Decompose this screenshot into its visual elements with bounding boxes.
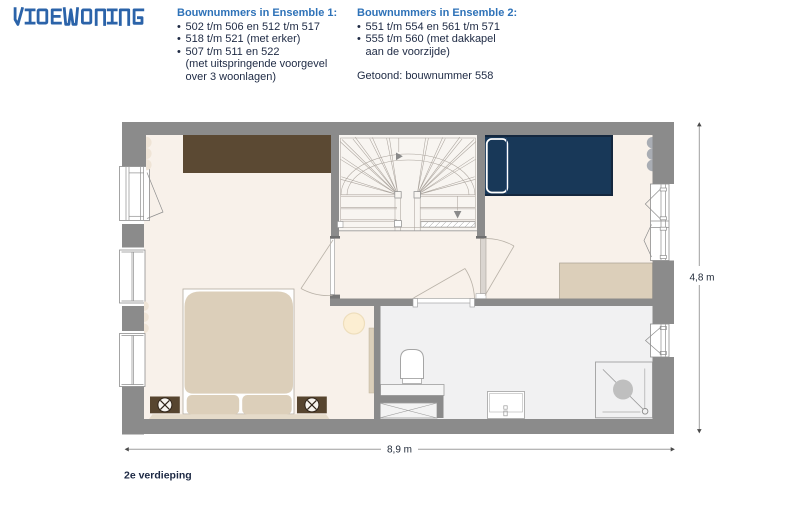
svg-text:4,8 m: 4,8 m <box>689 273 714 284</box>
svg-text:2e verdieping: 2e verdieping <box>124 470 192 482</box>
svg-text:8,9 m: 8,9 m <box>387 444 412 455</box>
